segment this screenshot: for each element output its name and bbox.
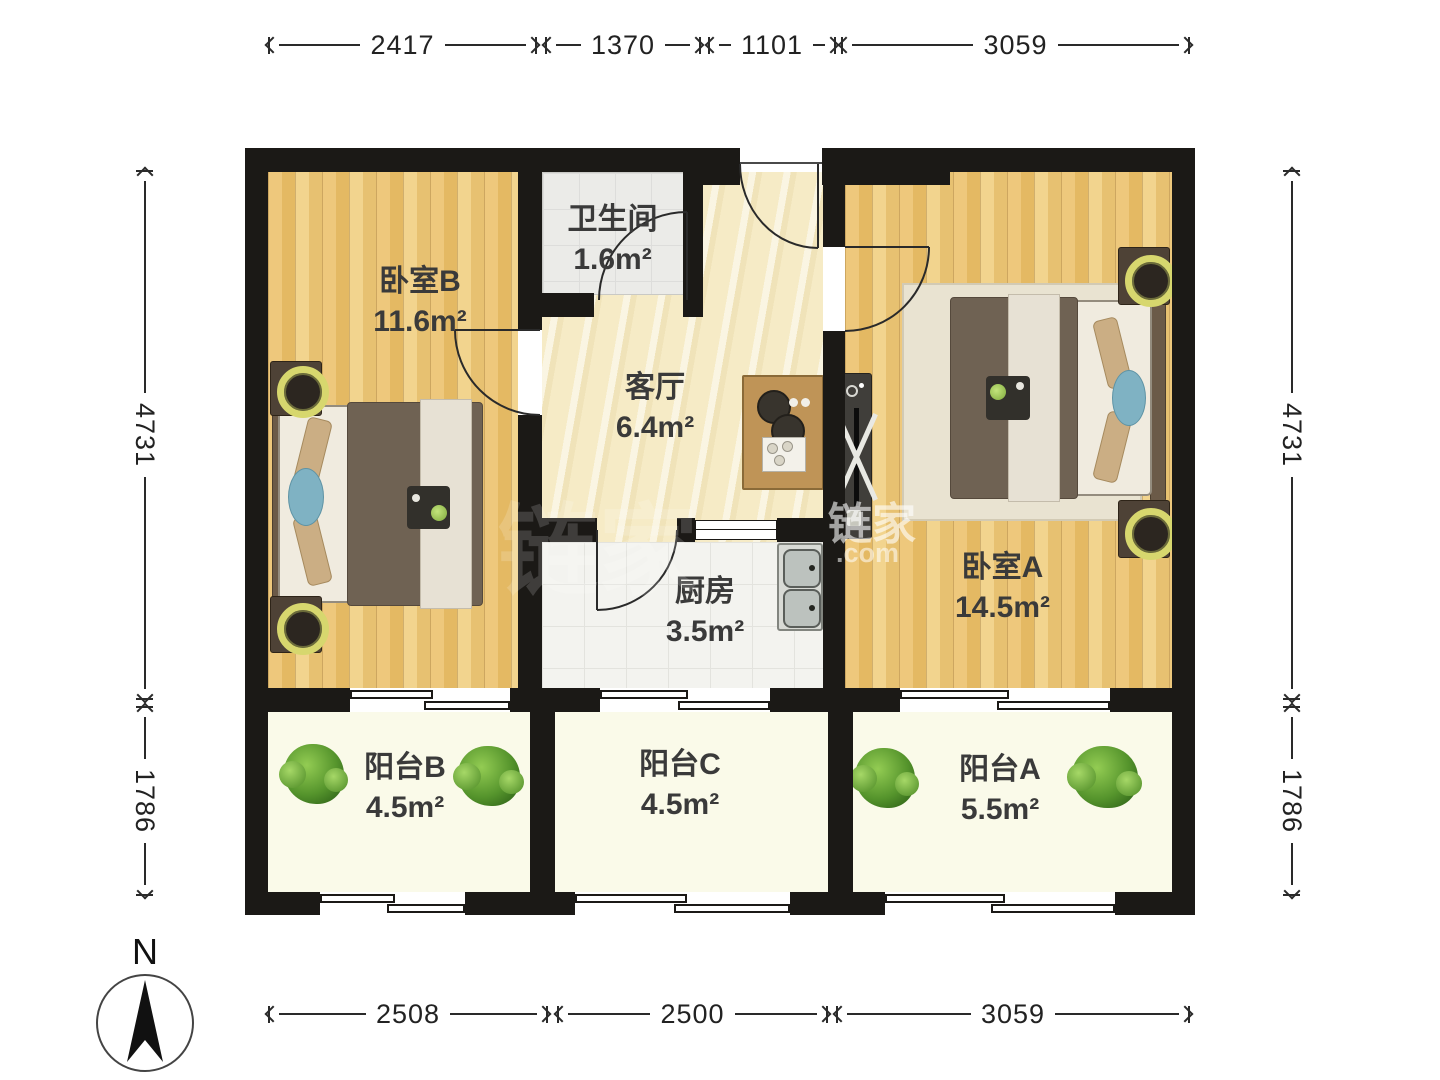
room-name: 阳台A	[915, 750, 1085, 790]
dim-value: 2417	[360, 30, 444, 61]
label-bathroom: 卫生间 1.6m²	[540, 200, 685, 279]
drain-icon	[809, 565, 815, 571]
wall-balcony-band	[1110, 688, 1195, 712]
dim-value: 1786	[130, 759, 161, 843]
wall-balcony-partition	[828, 688, 853, 915]
room-name: 卧室A	[915, 548, 1090, 588]
room-area: 11.6m²	[330, 302, 510, 342]
floor-plan: 链家 链家 .com 卧室B 11.6m² 卫生间 1.6m² 客厅 6.4m²…	[0, 0, 1440, 1080]
flower-icon	[431, 505, 447, 521]
wall-left-outer	[245, 148, 268, 915]
bed-a-tray	[986, 376, 1030, 420]
wall-right-outer	[1172, 148, 1195, 915]
dim-value: 1370	[581, 30, 665, 61]
dim-right-2: 1786	[1277, 706, 1307, 896]
dim-top-2: 1370	[545, 30, 701, 60]
wall-bottom	[245, 892, 320, 915]
room-name: 客厅	[580, 368, 730, 408]
knob-icon	[846, 385, 858, 397]
nightstand-a-bottom	[1118, 500, 1170, 558]
wall-balcony-partition	[530, 688, 555, 915]
window-balcony-c-outer	[575, 892, 790, 915]
wall-kitchen-top	[542, 518, 597, 542]
wall-bedroom-b-right-lower	[518, 415, 542, 712]
dim-value: 3059	[973, 30, 1057, 61]
dim-left-1: 4731	[130, 170, 160, 700]
dim-value: 1101	[731, 30, 813, 61]
plate-icon	[801, 398, 810, 407]
north-label: N	[95, 934, 195, 970]
dim-left-2: 1786	[130, 706, 160, 896]
cup-icon	[412, 494, 420, 502]
nightstand-b-top	[270, 361, 322, 416]
dim-value: 2500	[650, 999, 734, 1030]
drain-icon	[809, 605, 815, 611]
room-area: 4.5m²	[320, 788, 490, 828]
sink-basin	[783, 589, 821, 628]
room-area: 4.5m²	[595, 785, 765, 825]
nightstand-a-top	[1118, 247, 1170, 305]
wall-balcony-band	[245, 688, 350, 712]
entry-threshold	[740, 162, 822, 164]
window-balcony-b-outer	[320, 892, 465, 915]
room-name: 阳台C	[595, 745, 765, 785]
room-name: 卧室B	[330, 262, 510, 302]
dim-top-1: 2417	[268, 30, 537, 60]
lamp-icon	[277, 366, 329, 418]
kitchen-passthrough-window	[695, 520, 777, 540]
plate-icon	[789, 398, 798, 407]
room-area: 5.5m²	[915, 790, 1085, 830]
wall-bottom	[1115, 892, 1195, 915]
wall-top-left	[245, 148, 740, 172]
lamp-icon	[1125, 255, 1177, 307]
label-balcony-a: 阳台A 5.5m²	[915, 750, 1085, 829]
flower-icon	[990, 384, 1006, 400]
lamp-icon	[1125, 508, 1177, 560]
dim-bottom-1: 2508	[268, 999, 548, 1029]
lamp-icon	[277, 603, 329, 655]
dim-value: 1786	[1277, 759, 1308, 843]
window-bedroom-a-balcony	[900, 688, 1110, 712]
knob-icon	[859, 383, 864, 388]
dim-bottom-3: 3059	[836, 999, 1190, 1029]
plant-icon	[855, 748, 915, 808]
window-bedroom-b-balcony	[350, 688, 510, 712]
bed-a-cushion	[1112, 370, 1146, 426]
room-name: 卫生间	[540, 200, 685, 240]
label-balcony-b: 阳台B 4.5m²	[320, 748, 490, 827]
room-area: 14.5m²	[915, 588, 1090, 628]
cup-icon	[782, 441, 793, 452]
dining-table	[742, 375, 824, 490]
dim-value: 3059	[971, 999, 1055, 1030]
cup-icon	[767, 443, 778, 454]
wall-bedroom-a-left-upper	[823, 148, 845, 247]
bed-b-tray	[407, 486, 450, 529]
label-bedroom-b: 卧室B 11.6m²	[330, 262, 510, 341]
label-bedroom-a: 卧室A 14.5m²	[915, 548, 1090, 627]
dim-right-1: 4731	[1277, 170, 1307, 700]
room-area: 1.6m²	[540, 240, 685, 280]
label-balcony-c: 阳台C 4.5m²	[595, 745, 765, 824]
window-kitchen-balcony	[600, 688, 770, 712]
room-area: 6.4m²	[580, 408, 730, 448]
room-name: 厨房	[630, 572, 780, 612]
dim-bottom-2: 2500	[557, 999, 828, 1029]
bed-a-headboard	[1150, 294, 1166, 502]
cup-icon	[774, 455, 785, 466]
north-compass: N	[95, 934, 195, 1072]
label-living: 客厅 6.4m²	[580, 368, 730, 447]
sink-basin	[783, 549, 821, 588]
kitchen-sink	[777, 543, 823, 631]
tea-tray	[762, 437, 806, 472]
dim-top-3: 1101	[708, 30, 833, 60]
dim-top-4: 3059	[841, 30, 1190, 60]
label-kitchen: 厨房 3.5m²	[630, 572, 780, 651]
wall-bottom	[465, 892, 575, 915]
bed-b-cushion	[288, 468, 324, 526]
room-name: 阳台B	[320, 748, 490, 788]
dim-value: 2508	[366, 999, 450, 1030]
dim-value: 4731	[1277, 393, 1308, 477]
cup-icon	[1016, 382, 1024, 390]
rack-base	[847, 510, 861, 526]
north-arrow-icon	[98, 976, 192, 1070]
wall-kitchen-top-post	[677, 518, 695, 542]
dim-value: 4731	[130, 393, 161, 477]
compass-ring-icon	[96, 974, 194, 1072]
wall-bathroom-right	[683, 148, 703, 317]
nightstand-b-bottom	[270, 596, 322, 653]
wall-bedroom-a-left-lower	[823, 331, 845, 712]
wall-bathroom-bottom	[518, 293, 594, 317]
wall-kitchen-top-right	[777, 518, 823, 542]
window-balcony-a-outer	[885, 892, 1115, 915]
room-area: 3.5m²	[630, 612, 780, 652]
wall-top-right	[822, 148, 1195, 172]
